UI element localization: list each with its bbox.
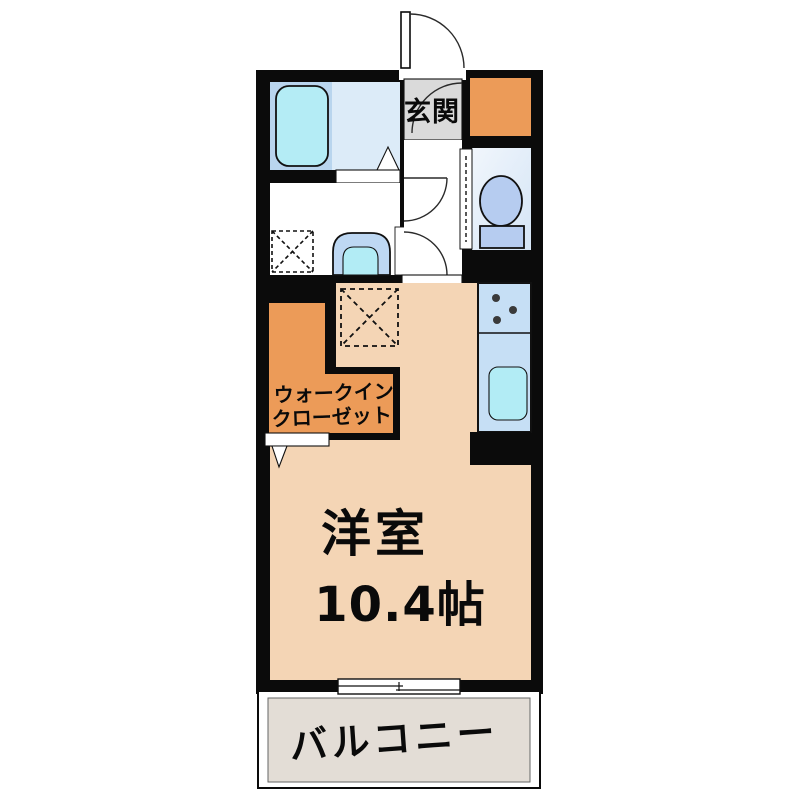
floor-plan-drawing: 玄関 洋室 10.4帖 ウォークイン	[0, 0, 800, 800]
balcony-window	[338, 679, 460, 694]
entrance-label: 玄関	[404, 96, 460, 128]
kitchen	[470, 283, 531, 465]
toilet-room	[460, 148, 531, 250]
washroom	[270, 183, 405, 275]
toilet-tank	[480, 226, 524, 248]
floor-plan: 玄関 洋室 10.4帖 ウォークイン	[0, 0, 800, 800]
closet-door-opening	[265, 433, 329, 446]
front-door-leaf	[401, 12, 410, 68]
washbasin-bowl	[343, 247, 378, 275]
kitchen-sink	[489, 367, 527, 420]
bathroom-door-opening	[336, 170, 400, 183]
front-door-swing	[410, 14, 464, 68]
bathroom	[270, 82, 400, 183]
shoe-storage	[470, 78, 531, 136]
bathtub	[276, 86, 328, 166]
hallway-floor	[404, 140, 462, 276]
entrance-hall: 玄関	[401, 12, 464, 287]
kitchen-wall-stub	[470, 432, 531, 465]
main-room-size-label: 10.4帖	[314, 577, 485, 633]
toilet-bowl	[480, 176, 522, 226]
washroom-door-opening	[395, 227, 405, 275]
main-room-label: 洋室	[321, 505, 429, 563]
closet-label-line2: クローゼット	[271, 403, 392, 431]
balcony: バルコニー	[256, 679, 543, 788]
